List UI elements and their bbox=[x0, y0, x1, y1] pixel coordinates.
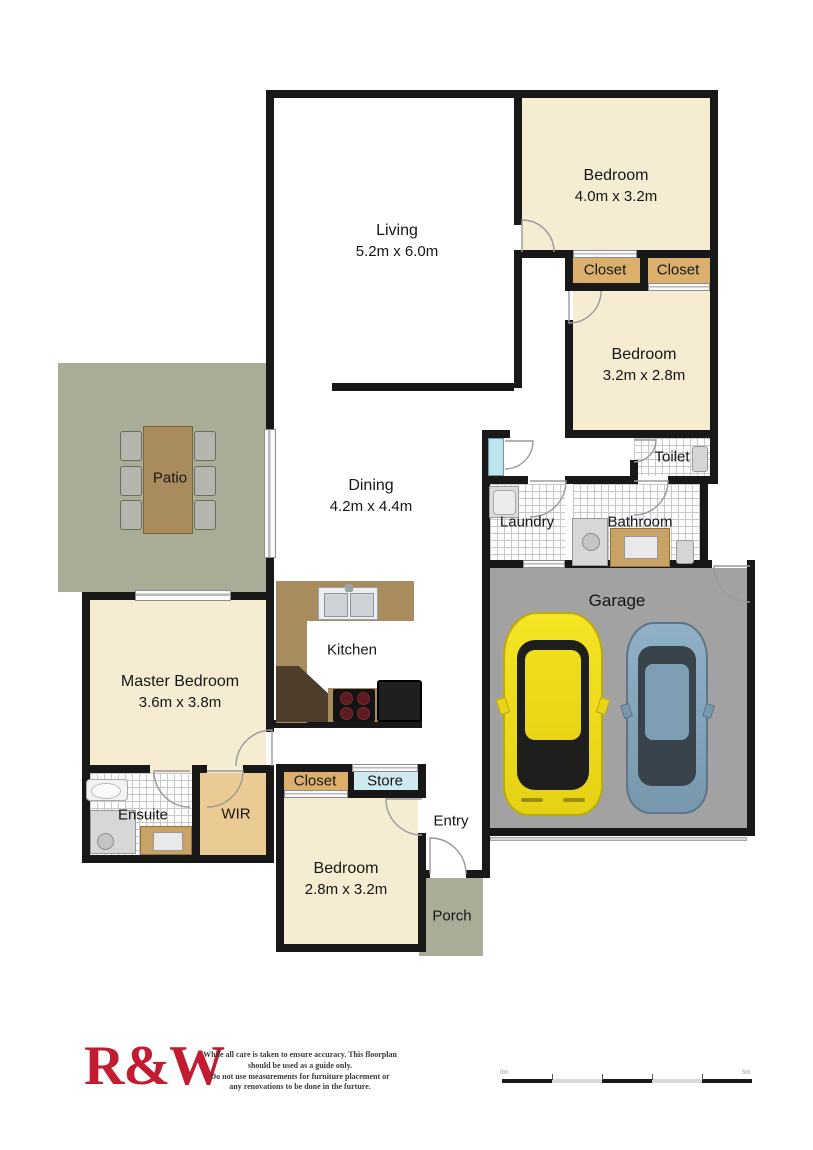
wall-segment bbox=[266, 363, 274, 429]
kitchen-stove bbox=[333, 689, 375, 722]
disclaimer-line: While all care is taken to ensure accura… bbox=[202, 1050, 398, 1061]
scale-tick bbox=[652, 1074, 653, 1080]
room-label-master-bedroom: Master Bedroom 3.6m x 3.8m bbox=[121, 672, 239, 712]
scale-start-label: 0m bbox=[500, 1070, 508, 1076]
door-arc bbox=[430, 838, 466, 874]
wall-segment bbox=[82, 592, 90, 863]
wall-segment bbox=[668, 476, 718, 484]
window-rail bbox=[135, 590, 231, 601]
wall-segment bbox=[82, 855, 274, 863]
kitchen-fridge bbox=[377, 680, 422, 722]
room-label-closet-bottom: Closet bbox=[294, 771, 337, 791]
car-roof bbox=[525, 650, 581, 740]
bath-tub bbox=[91, 783, 121, 799]
yellow-car bbox=[503, 612, 603, 816]
disclaimer-line: any renovations to be done in the furtur… bbox=[202, 1082, 398, 1093]
wall-segment bbox=[514, 258, 522, 388]
wall-segment bbox=[243, 765, 274, 773]
wall-segment bbox=[640, 250, 648, 291]
bathroom-vanity bbox=[610, 528, 670, 567]
stove-burner bbox=[340, 707, 353, 720]
stove-burner bbox=[357, 692, 370, 705]
floorplan: Living 5.2m x 6.0m Bedroom 4.0m x 3.2m B… bbox=[0, 0, 813, 1150]
room-label-toilet: Toilet bbox=[654, 447, 689, 467]
scale-segment bbox=[552, 1079, 602, 1083]
room-label-living: Living 5.2m x 6.0m bbox=[356, 221, 439, 261]
scale-end-label: 5m bbox=[742, 1070, 750, 1076]
scale-bar bbox=[502, 1079, 752, 1083]
window-rail bbox=[284, 790, 348, 798]
window-rail bbox=[523, 560, 565, 568]
wall-segment bbox=[418, 833, 426, 952]
blue-car bbox=[626, 622, 708, 814]
kitchen-counter-corner bbox=[276, 666, 330, 722]
room-label-bathroom: Bathroom bbox=[607, 512, 672, 532]
room-label-ensuite: Ensuite bbox=[118, 805, 168, 825]
wall-segment bbox=[266, 600, 274, 732]
wall-segment bbox=[482, 828, 755, 836]
window-rail bbox=[573, 250, 637, 258]
wall-segment bbox=[418, 870, 430, 878]
sink-basin bbox=[350, 593, 374, 617]
patio-chair bbox=[120, 466, 142, 496]
wall-segment bbox=[482, 430, 510, 438]
room-label-kitchen: Kitchen bbox=[327, 640, 377, 660]
patio-chair bbox=[194, 466, 216, 496]
patio-chair bbox=[120, 500, 142, 530]
wall-segment bbox=[332, 383, 514, 391]
stove-burner bbox=[340, 692, 353, 705]
scale-segment bbox=[702, 1079, 752, 1083]
shower-drain bbox=[582, 533, 600, 551]
room-label-bedroom-top: Bedroom 4.0m x 3.2m bbox=[575, 166, 658, 206]
shower-drain bbox=[97, 833, 114, 850]
stove-burner bbox=[357, 707, 370, 720]
car-headlight bbox=[521, 798, 543, 802]
wall-segment bbox=[200, 765, 207, 773]
kitchen-sink bbox=[318, 587, 378, 620]
wall-segment bbox=[466, 870, 486, 878]
wall-segment bbox=[482, 476, 528, 484]
bathroom-toilet bbox=[676, 540, 694, 564]
room-label-bedroom-mid: Bedroom 3.2m x 2.8m bbox=[603, 345, 686, 385]
room-label-closet-top-right: Closet bbox=[657, 260, 700, 280]
window-rail bbox=[648, 283, 710, 291]
scale-tick bbox=[702, 1074, 703, 1080]
wall-segment bbox=[90, 765, 150, 773]
sliding-door bbox=[264, 429, 276, 558]
wall-segment bbox=[565, 476, 632, 484]
wall-segment bbox=[565, 430, 718, 438]
ensuite-bath bbox=[86, 779, 128, 801]
room-label-closet-top-left: Closet bbox=[584, 260, 627, 280]
wall-segment bbox=[700, 476, 708, 568]
ensuite-vanity bbox=[140, 826, 192, 855]
room-label-dining: Dining 4.2m x 4.4m bbox=[330, 476, 413, 516]
room-label-patio: Patio bbox=[153, 468, 187, 488]
scale-tick bbox=[552, 1074, 553, 1080]
vanity-sink bbox=[624, 536, 658, 559]
linen-closet bbox=[488, 438, 504, 476]
patio-chair bbox=[194, 431, 216, 461]
wall-segment bbox=[266, 90, 274, 363]
wall-segment bbox=[565, 320, 573, 438]
scale-segment bbox=[502, 1079, 552, 1083]
wall-segment bbox=[266, 766, 274, 863]
garage-roller-door bbox=[490, 837, 747, 841]
disclaimer-text: While all care is taken to ensure accura… bbox=[202, 1050, 398, 1093]
wall-segment bbox=[565, 250, 573, 291]
vanity-sink bbox=[153, 832, 183, 851]
tub-basin bbox=[493, 490, 516, 515]
car-roof bbox=[645, 664, 689, 740]
wall-segment bbox=[276, 944, 426, 952]
toilet-pan bbox=[692, 446, 708, 472]
scale-segment bbox=[602, 1079, 652, 1083]
room-label-laundry: Laundry bbox=[500, 512, 554, 532]
disclaimer-line: Do not use measurements for furniture pl… bbox=[202, 1072, 398, 1083]
scale-segment bbox=[652, 1079, 702, 1083]
room-label-entry: Entry bbox=[433, 811, 468, 831]
wall-segment bbox=[192, 765, 200, 863]
patio-chair bbox=[120, 431, 142, 461]
disclaimer-line: should be used as a guide only. bbox=[202, 1061, 398, 1072]
sink-faucet bbox=[345, 584, 353, 592]
wall-segment bbox=[514, 90, 522, 225]
bathroom-shower bbox=[572, 518, 608, 566]
wall-segment bbox=[266, 90, 718, 98]
room-label-bedroom-bottom: Bedroom 2.8m x 3.2m bbox=[305, 859, 388, 899]
room-label-garage: Garage bbox=[589, 590, 646, 612]
wall-segment bbox=[747, 560, 755, 836]
room-label-store: Store bbox=[367, 771, 403, 791]
room-label-porch: Porch bbox=[432, 906, 471, 926]
sink-basin bbox=[324, 593, 348, 617]
car-headlight bbox=[563, 798, 585, 802]
scale-tick bbox=[602, 1074, 603, 1080]
patio-chair bbox=[194, 500, 216, 530]
room-label-wir: WIR bbox=[221, 804, 250, 824]
door-arc bbox=[505, 441, 533, 469]
